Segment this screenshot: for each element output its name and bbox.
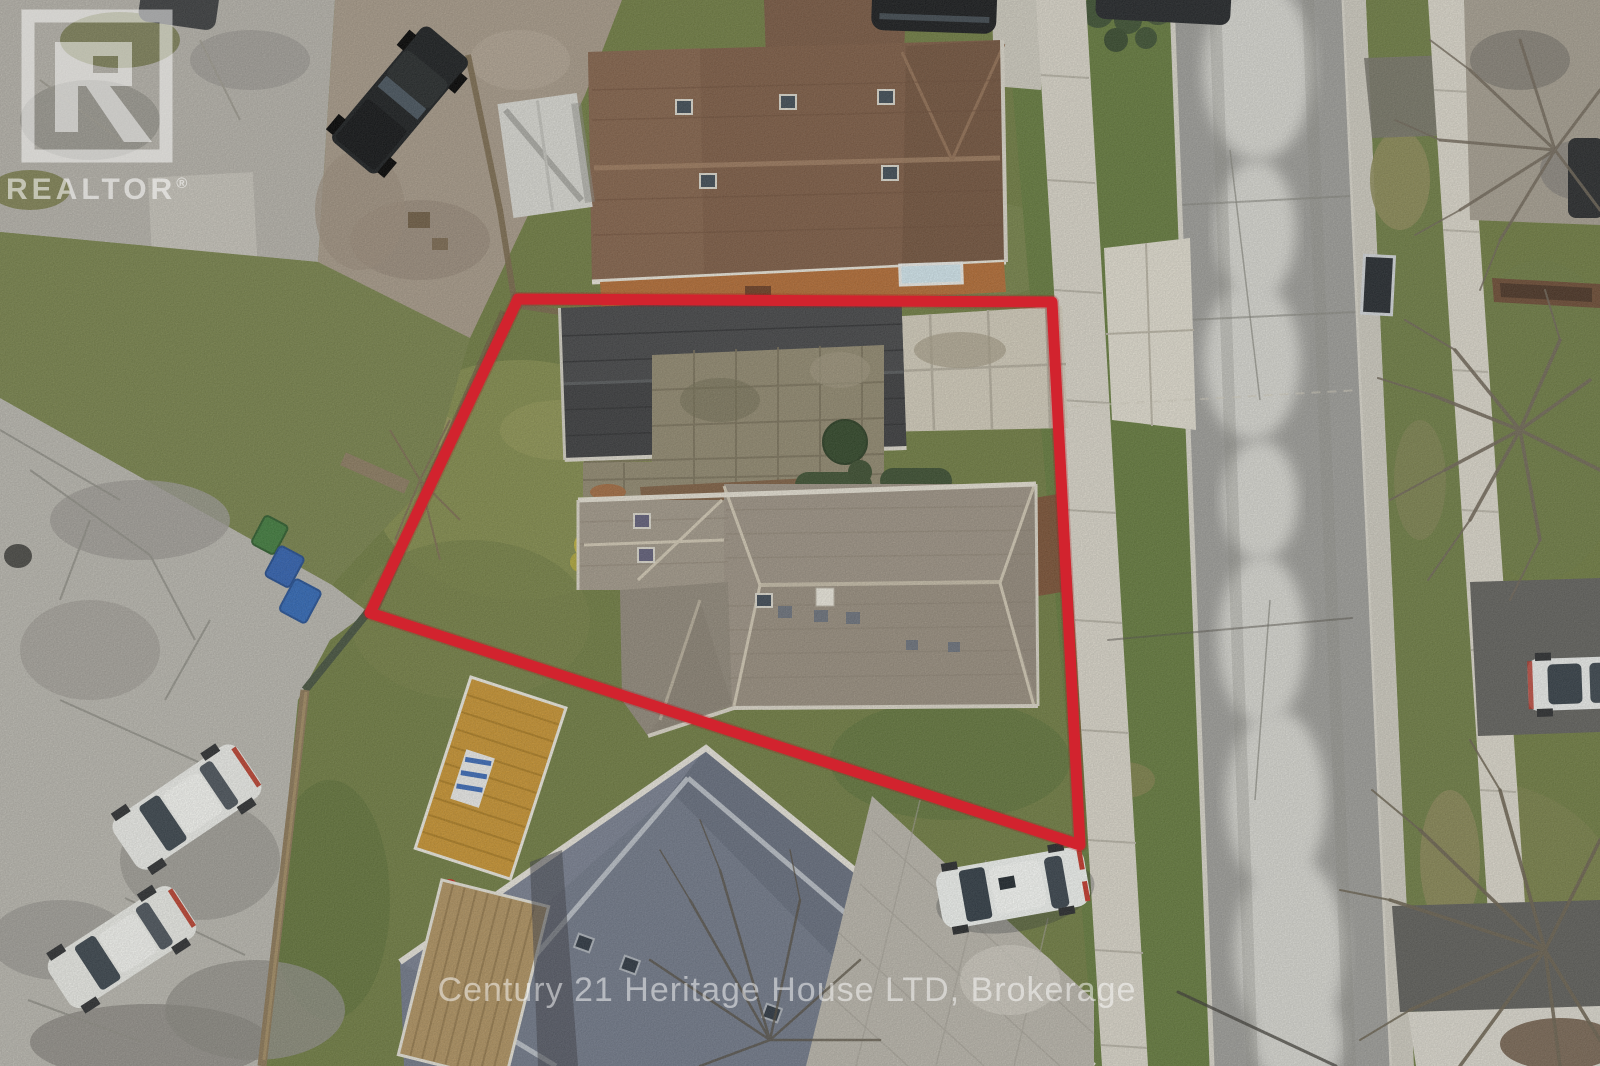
photo-grain (0, 0, 1600, 1066)
aerial-photo-listing: REALTOR® Century 21 Heritage House LTD, … (0, 0, 1600, 1066)
brokerage-watermark: Century 21 Heritage House LTD, Brokerage (438, 971, 1137, 1009)
aerial-photo: REALTOR® Century 21 Heritage House LTD, … (0, 0, 1600, 1066)
registered-mark: ® (176, 175, 191, 192)
realtor-wordmark: REALTOR® (6, 173, 191, 206)
realtor-wordmark-text: REALTOR (6, 173, 176, 206)
